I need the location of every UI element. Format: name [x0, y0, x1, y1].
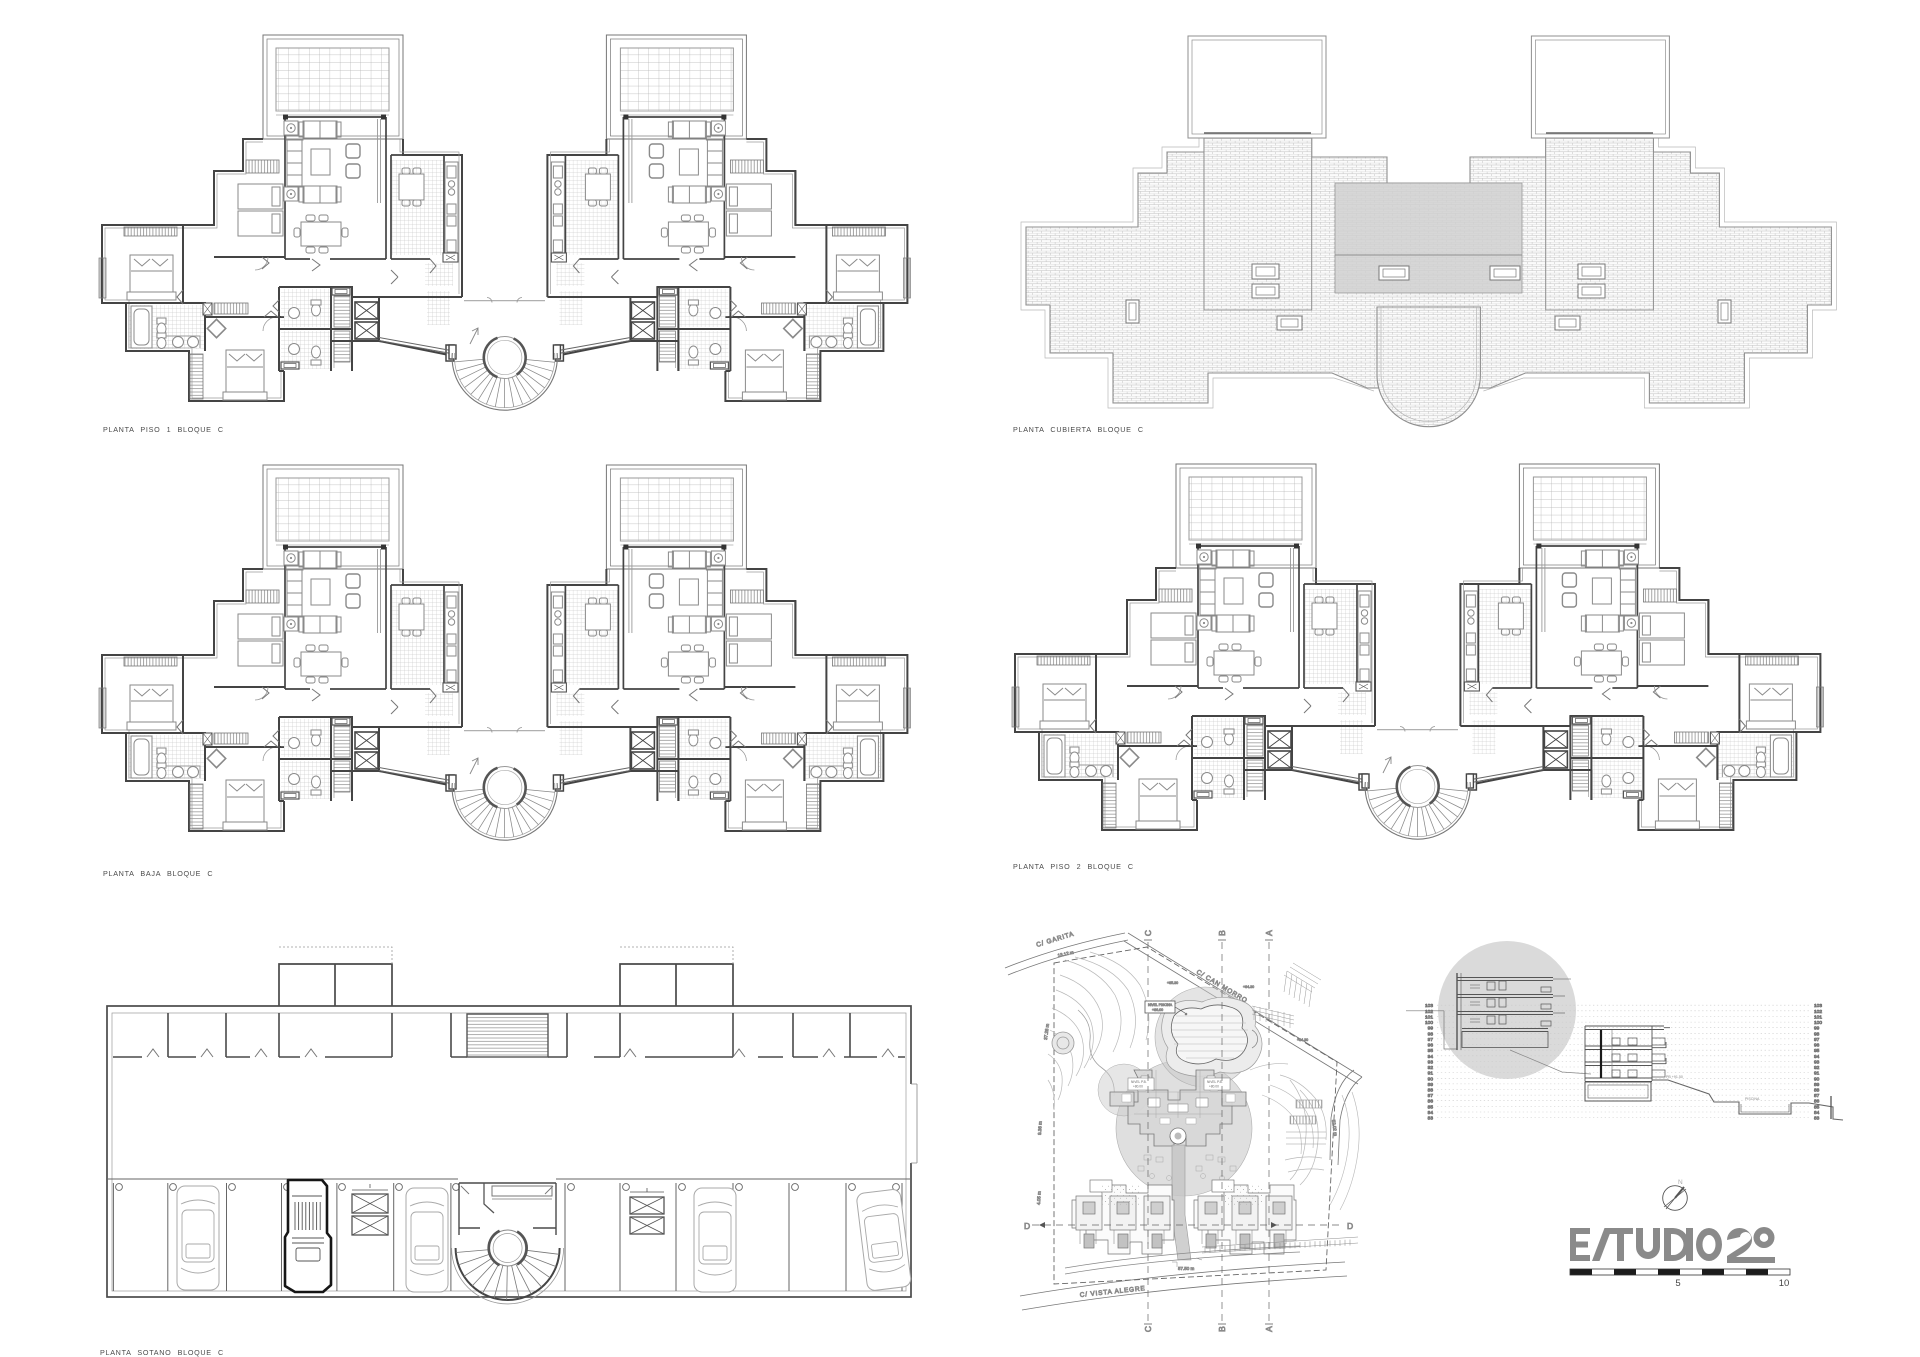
svg-text:102: 102 [1425, 1009, 1433, 1015]
svg-text:+84.30: +84.30 [1243, 985, 1254, 989]
svg-text:+84.30: +84.30 [1297, 1038, 1308, 1042]
svg-text:85: 85 [1428, 1104, 1434, 1110]
svg-text:B: B [1217, 930, 1227, 936]
svg-text:PLANTA PISO 1 BLOQUE C: PLANTA PISO 1 BLOQUE C [103, 425, 224, 434]
svg-text:92: 92 [1428, 1065, 1434, 1071]
svg-text:90: 90 [1814, 1076, 1820, 1082]
svg-text:+80.00: +80.00 [1133, 1085, 1143, 1089]
svg-text:C: C [1143, 1326, 1153, 1332]
svg-text:96: 96 [1814, 1043, 1820, 1049]
svg-text:88: 88 [1814, 1088, 1820, 1094]
svg-text:10: 10 [1779, 1278, 1790, 1289]
svg-text:NIVEL PISCINA: NIVEL PISCINA [1148, 1003, 1173, 1007]
svg-text:98: 98 [1814, 1031, 1820, 1037]
svg-text:89: 89 [1814, 1082, 1820, 1088]
svg-text:9.36 m: 9.36 m [1037, 1121, 1043, 1135]
svg-text:D: D [1024, 1221, 1030, 1231]
svg-text:93: 93 [1428, 1059, 1434, 1065]
svg-text:94: 94 [1428, 1054, 1434, 1060]
svg-text:NIVEL P.B.: NIVEL P.B. [1131, 1080, 1147, 1084]
svg-text:96: 96 [1428, 1043, 1434, 1049]
svg-text:PLANTA BAJA BLOQUE C: PLANTA BAJA BLOQUE C [103, 869, 213, 878]
svg-text:D: D [1347, 1221, 1353, 1231]
svg-text:A: A [1264, 930, 1274, 936]
svg-text:N: N [1678, 1179, 1683, 1186]
svg-text:101: 101 [1814, 1014, 1822, 1020]
svg-text:91: 91 [1814, 1071, 1820, 1077]
svg-text:101: 101 [1425, 1014, 1433, 1020]
svg-text:94: 94 [1814, 1054, 1820, 1060]
svg-text:83: 83 [1814, 1116, 1820, 1122]
svg-text:83: 83 [1428, 1116, 1434, 1122]
svg-text:103: 103 [1425, 1003, 1433, 1009]
svg-text:95: 95 [1428, 1048, 1434, 1054]
svg-text:A: A [1264, 1326, 1274, 1332]
svg-text:57.50 m: 57.50 m [1178, 1266, 1195, 1271]
svg-text:PLANTA PISO 2 BLOQUE C: PLANTA PISO 2 BLOQUE C [1013, 862, 1134, 871]
svg-text:98: 98 [1428, 1031, 1434, 1037]
svg-text:PLANTA SOTANO BLOQUE C: PLANTA SOTANO BLOQUE C [100, 1348, 224, 1357]
svg-text:99: 99 [1814, 1026, 1820, 1032]
svg-text:B: B [1217, 1326, 1227, 1332]
svg-text:100: 100 [1425, 1020, 1433, 1026]
svg-text:87: 87 [1814, 1093, 1820, 1099]
svg-text:97: 97 [1814, 1037, 1820, 1043]
svg-text:+80.00: +80.00 [1209, 1085, 1219, 1089]
svg-text:89: 89 [1428, 1082, 1434, 1088]
svg-text:99: 99 [1428, 1026, 1434, 1032]
svg-text:97: 97 [1428, 1037, 1434, 1043]
svg-text:4.05 m: 4.05 m [1036, 1191, 1042, 1205]
svg-text:PLANTA CUBIERTA BLOQUE C: PLANTA CUBIERTA BLOQUE C [1013, 425, 1144, 434]
svg-text:87: 87 [1428, 1093, 1434, 1099]
svg-text:PISCINA: PISCINA [1745, 1097, 1760, 1101]
svg-text:84: 84 [1814, 1110, 1820, 1116]
svg-text:92: 92 [1814, 1065, 1820, 1071]
svg-text:5: 5 [1675, 1278, 1680, 1289]
svg-text:93: 93 [1814, 1059, 1820, 1065]
svg-text:PB +91.50: PB +91.50 [1666, 1075, 1683, 1079]
svg-text:91: 91 [1428, 1071, 1434, 1077]
svg-text:85: 85 [1814, 1104, 1820, 1110]
svg-text:88: 88 [1428, 1088, 1434, 1094]
svg-text:+85.30: +85.30 [1167, 981, 1178, 985]
svg-text:90: 90 [1428, 1076, 1434, 1082]
svg-text:+86.00: +86.00 [1152, 1008, 1163, 1012]
svg-text:95: 95 [1814, 1048, 1820, 1054]
svg-text:NIVEL P.B.: NIVEL P.B. [1207, 1080, 1223, 1084]
svg-text:100: 100 [1814, 1020, 1822, 1026]
svg-text:86: 86 [1428, 1099, 1434, 1105]
svg-text:102: 102 [1814, 1009, 1822, 1015]
svg-text:C: C [1143, 930, 1153, 936]
svg-text:103: 103 [1814, 1003, 1822, 1009]
svg-text:84: 84 [1428, 1110, 1434, 1116]
